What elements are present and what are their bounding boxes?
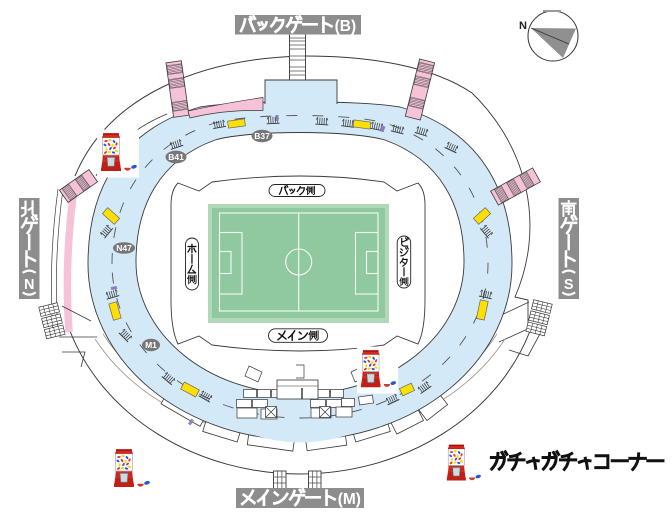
svg-text:(M): (M)	[338, 491, 361, 508]
svg-text:B37: B37	[254, 131, 270, 141]
svg-text:N: N	[24, 277, 34, 293]
svg-text:B41: B41	[168, 152, 184, 162]
svg-text:S: S	[564, 277, 574, 293]
svg-text:M1: M1	[145, 340, 157, 350]
svg-text:N: N	[519, 20, 527, 32]
svg-text:(B): (B)	[335, 18, 357, 35]
svg-text:N47: N47	[116, 243, 132, 253]
